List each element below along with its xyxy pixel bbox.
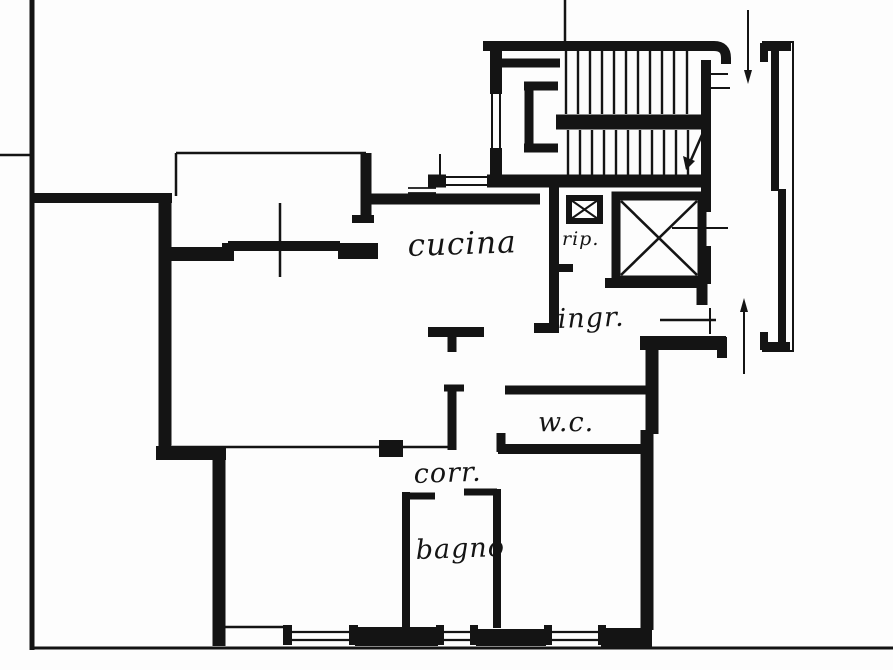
label-ingr: ingr. (557, 302, 625, 335)
floor-plan-drawing: cucina rip. ingr. w.c. corr. bagno (0, 0, 893, 670)
apartment-walls (32, 153, 726, 646)
label-cucina: cucina (407, 224, 517, 264)
bottom-wall-windows (283, 625, 652, 647)
label-bagno: bagno (415, 532, 505, 566)
floor-plan-page: cucina rip. ingr. w.c. corr. bagno (0, 0, 893, 670)
door-jamb (379, 440, 403, 457)
elevator-shaft (605, 183, 728, 305)
duct-shaft-icon (569, 198, 600, 221)
balcony-parapet (760, 42, 793, 351)
label-wc: w.c. (538, 407, 594, 438)
stair-treads (566, 51, 688, 175)
section-arrow-icon (740, 10, 752, 374)
room-labels: cucina rip. ingr. w.c. corr. bagno (407, 224, 625, 566)
elevator-x-icon (621, 201, 697, 275)
label-rip: rip. (562, 228, 599, 250)
label-corr: corr. (413, 457, 482, 490)
